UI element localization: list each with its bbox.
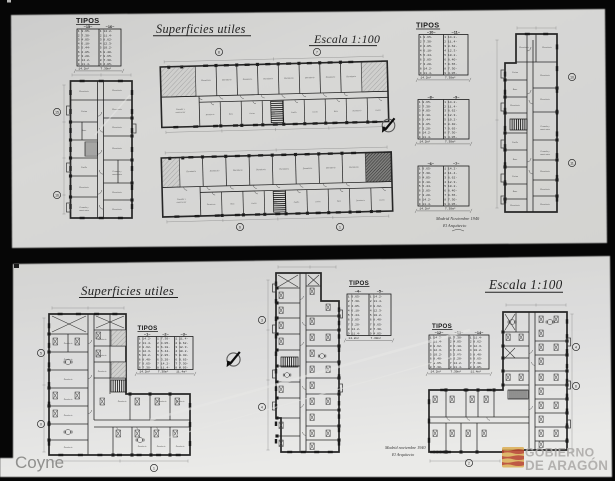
svg-text:3 4.05·: 3 4.05· — [420, 44, 433, 48]
svg-text:Coyne: Coyne — [15, 453, 64, 472]
svg-text:Dormitorio: Dormitorio — [111, 126, 121, 129]
svg-text:4 6.18·: 4 6.18· — [420, 49, 433, 53]
svg-text:cuarto estar: cuarto estar — [177, 201, 187, 204]
svg-text:5 10.2·: 5 10.2· — [444, 184, 457, 188]
svg-text:Dormitorio: Dormitorio — [175, 400, 185, 403]
svg-text:Cocina: Cocina — [251, 203, 257, 205]
svg-text:Dormitorio: Dormitorio — [255, 168, 266, 171]
svg-text:3 8.62·: 3 8.62· — [444, 44, 457, 48]
svg-text:Dormitorio: Dormitorio — [325, 166, 336, 169]
svg-text:Dormitorio: Dormitorio — [302, 167, 313, 170]
svg-text:Bano: Bano — [513, 89, 517, 91]
svg-text:Dormitorio: Dormitorio — [137, 445, 147, 448]
svg-text:2 11.4·: 2 11.4· — [444, 171, 457, 175]
svg-text:Dormitorio: Dormitorio — [206, 203, 216, 206]
svg-text:5 5.44·: 5 5.44· — [348, 313, 361, 317]
svg-text:TIPOS: TIPOS — [349, 280, 369, 287]
svg-text:Dormitorio: Dormitorio — [325, 76, 336, 79]
svg-text:Dormitorio: Dormitorio — [63, 414, 73, 417]
svg-text:4 12.3·: 4 12.3· — [370, 308, 383, 312]
svg-text:Cocina: Cocina — [81, 111, 87, 113]
svg-text:14.2m²: 14.2m² — [419, 141, 430, 144]
svg-text:4: 4 — [575, 345, 577, 349]
svg-text:Cocina: Cocina — [512, 72, 518, 74]
svg-text:Dormitorio: Dormitorio — [242, 78, 253, 81]
svg-text:8 4.05·: 8 4.05· — [175, 366, 188, 370]
svg-text:Dormitorio: Dormitorio — [117, 400, 127, 403]
svg-text:14.2m²: 14.2m² — [348, 337, 359, 340]
svg-text:Bano: Bano — [273, 202, 277, 204]
svg-text:8 14.2·: 8 14.2· — [348, 327, 361, 331]
svg-text:cuarto estar: cuarto estar — [540, 153, 550, 156]
svg-text:3 4.05·: 3 4.05· — [348, 304, 361, 308]
svg-text:cuarto estar: cuarto estar — [112, 173, 122, 176]
svg-text:1: 1 — [153, 466, 155, 470]
svg-text:Dormitorio: Dormitorio — [232, 169, 243, 172]
svg-text:DE ARAGÓN: DE ARAGÓN — [525, 458, 608, 473]
svg-text:Dormitorio: Dormitorio — [156, 445, 166, 448]
svg-text:Dormitorio: Dormitorio — [97, 370, 107, 373]
svg-text:Dormitorio: Dormitorio — [157, 400, 167, 403]
svg-text:14.2m²: 14.2m² — [78, 68, 89, 71]
svg-text:TIPOS: TIPOS — [432, 323, 452, 330]
svg-text:Madrid Noviembre 1940: Madrid Noviembre 1940 — [435, 216, 480, 221]
svg-text:7.30m²: 7.30m² — [100, 68, 111, 71]
svg-text:8: 8 — [218, 50, 220, 54]
svg-text:9 11.4·: 9 11.4· — [419, 135, 432, 139]
svg-text:TIPOS: TIPOS — [416, 21, 439, 30]
svg-text:Bano: Bano — [229, 113, 233, 115]
svg-text:7: 7 — [316, 50, 318, 54]
svg-text:9 4.05·: 9 4.05· — [370, 331, 383, 335]
svg-text:Comedor y: Comedor y — [177, 199, 186, 201]
svg-text:Bano: Bano — [230, 203, 234, 205]
svg-text:2 11.4·: 2 11.4· — [370, 299, 383, 303]
svg-text:8 4.05·: 8 4.05· — [470, 365, 483, 369]
svg-text:Dormitorio: Dormitorio — [78, 186, 88, 189]
svg-text:Madrid noviembre 1940: Madrid noviembre 1940 — [384, 445, 426, 450]
svg-text:Pasillo: Pasillo — [290, 112, 296, 114]
svg-text:Dormitorio: Dormitorio — [539, 170, 549, 173]
svg-text:Dormitorio: Dormitorio — [262, 77, 273, 80]
svg-text:4 12.3·: 4 12.3· — [444, 180, 457, 184]
svg-text:Cocina: Cocina — [249, 113, 255, 115]
svg-text:El Arquitecto: El Arquitecto — [442, 223, 467, 228]
svg-text:Dormitorio: Dormitorio — [185, 170, 196, 173]
svg-text:Cocina: Cocina — [512, 176, 518, 178]
svg-text:8 14.2·: 8 14.2· — [420, 67, 433, 71]
svg-text:Dormitorio: Dormitorio — [78, 90, 88, 93]
svg-text:Dormitorio: Dormitorio — [509, 104, 519, 107]
svg-text:~4~: ~4~ — [355, 290, 362, 294]
svg-text:7.30m²: 7.30m² — [445, 141, 456, 144]
svg-text:0: 0 — [40, 422, 42, 426]
svg-text:cuarto estar: cuarto estar — [540, 128, 550, 131]
svg-text:1 9.65·: 1 9.65· — [348, 295, 361, 299]
svg-text:Dormitorio: Dormitorio — [518, 46, 528, 49]
svg-text:Dormitorio: Dormitorio — [304, 76, 315, 79]
svg-text:Bano: Bano — [337, 201, 341, 203]
svg-text:Dormitorio: Dormitorio — [63, 446, 73, 449]
svg-text:7 3.20·: 7 3.20· — [419, 193, 432, 197]
svg-text:10: 10 — [570, 75, 574, 79]
svg-text:9 4.05·: 9 4.05· — [444, 202, 457, 206]
svg-text:8 7.30·: 8 7.30· — [370, 327, 383, 331]
svg-text:3 4.05·: 3 4.05· — [419, 175, 432, 179]
svg-text:7.30m²: 7.30m² — [445, 208, 456, 211]
svg-text:Comedor y: Comedor y — [79, 207, 88, 209]
svg-text:Bano: Bano — [513, 159, 517, 161]
svg-text:1 9.65·: 1 9.65· — [419, 166, 432, 170]
svg-text:9 4.05·: 9 4.05· — [444, 71, 457, 75]
svg-text:6 2.85·: 6 2.85· — [348, 318, 361, 322]
svg-text:TIPOS: TIPOS — [76, 16, 99, 25]
svg-text:4: 4 — [261, 405, 263, 409]
svg-text:Dormitorio: Dormitorio — [209, 169, 220, 172]
svg-text:Pasillo: Pasillo — [80, 167, 87, 169]
svg-text:7 9.65·: 7 9.65· — [444, 193, 457, 197]
svg-text:6 8.40·: 6 8.40· — [444, 189, 457, 193]
svg-text:7 9.65·: 7 9.65· — [444, 62, 457, 66]
svg-text:6 8.40·: 6 8.40· — [370, 318, 383, 322]
svg-text:Dormitorio: Dormitorio — [539, 203, 549, 206]
svg-text:6: 6 — [575, 384, 577, 388]
svg-text:11: 11 — [570, 161, 574, 165]
svg-text:2 7.30·: 2 7.30· — [420, 40, 433, 44]
svg-text:5 5.44·: 5 5.44· — [420, 53, 433, 57]
svg-text:Dormitorio: Dormitorio — [539, 74, 549, 77]
svg-text:7 3.20·: 7 3.20· — [348, 322, 361, 326]
svg-text:Cocina: Cocina — [315, 201, 321, 203]
svg-text:Dormitorio: Dormitorio — [205, 113, 215, 116]
svg-text:Dormitorio: Dormitorio — [352, 109, 362, 112]
svg-text:Dormitorio: Dormitorio — [539, 98, 549, 101]
svg-text:8 11.4·: 8 11.4· — [450, 365, 463, 369]
svg-text:cuarto estar: cuarto estar — [79, 209, 89, 212]
svg-text:Dormitorio: Dormitorio — [221, 78, 232, 81]
svg-text:cuarto estar: cuarto estar — [176, 111, 186, 114]
svg-text:3 8.62·: 3 8.62· — [370, 304, 383, 308]
svg-text:Comedor y: Comedor y — [540, 126, 549, 128]
svg-text:4 6.18·: 4 6.18· — [348, 308, 361, 312]
svg-text:Dormitorio: Dormitorio — [63, 358, 73, 361]
svg-text:14.2m²: 14.2m² — [139, 371, 150, 374]
svg-text:~9~: ~9~ — [453, 96, 460, 100]
svg-text:Comedor y: Comedor y — [540, 151, 549, 153]
svg-text:Dormitorio: Dormitorio — [509, 204, 519, 207]
svg-text:1 14.2·: 1 14.2· — [444, 35, 457, 39]
svg-text:Pasillo: Pasillo — [511, 142, 518, 144]
svg-text:9 11.4·: 9 11.4· — [420, 71, 433, 75]
svg-text:2: 2 — [468, 461, 470, 465]
svg-text:Pasillo: Pasillo — [293, 202, 299, 204]
svg-text:6 2.85·: 6 2.85· — [420, 58, 433, 62]
svg-text:7.30m²: 7.30m² — [450, 371, 461, 374]
svg-text:Bano: Bano — [334, 111, 338, 113]
svg-text:Dormitorio: Dormitorio — [111, 147, 121, 150]
svg-text:Cocina: Cocina — [375, 110, 381, 112]
svg-text:4 12.3·: 4 12.3· — [444, 49, 457, 53]
svg-text:11.4m²: 11.4m² — [470, 371, 481, 374]
svg-text:8 14.2·: 8 14.2· — [419, 198, 432, 202]
svg-text:14.2m²: 14.2m² — [430, 371, 441, 374]
svg-text:~11~: ~11~ — [452, 31, 461, 35]
svg-text:2 7.30·: 2 7.30· — [348, 299, 361, 303]
svg-text:Dormitorio: Dormitorio — [200, 79, 211, 82]
svg-text:8 7.30·: 8 7.30· — [444, 67, 457, 71]
svg-text:Dormitorio: Dormitorio — [63, 342, 73, 345]
svg-text:7 9.65·: 7 9.65· — [370, 322, 383, 326]
svg-text:7.30m²: 7.30m² — [445, 77, 456, 80]
svg-text:5 10.2·: 5 10.2· — [370, 313, 383, 317]
svg-text:9 11.4·: 9 11.4· — [348, 331, 361, 335]
svg-text:8 7.30·: 8 7.30· — [444, 198, 457, 202]
svg-text:6 8.40·: 6 8.40· — [444, 58, 457, 62]
svg-text:Dormitorio: Dormitorio — [97, 354, 107, 357]
svg-text:7.30m²: 7.30m² — [370, 337, 381, 340]
svg-text:2 7.30·: 2 7.30· — [419, 171, 432, 175]
svg-text:9 11.4·: 9 11.4· — [419, 202, 432, 206]
svg-text:Cocina: Cocina — [312, 111, 318, 113]
svg-text:14.2m²: 14.2m² — [419, 208, 430, 211]
svg-text:9 11.4·: 9 11.4· — [78, 62, 91, 66]
svg-text:Dormitorio: Dormitorio — [111, 89, 121, 92]
svg-text:Superficies utiles: Superficies utiles — [81, 284, 174, 298]
svg-text:Superficies utiles: Superficies utiles — [156, 22, 246, 36]
svg-text:El Arquitecto: El Arquitecto — [391, 452, 414, 457]
svg-text:11.4m²: 11.4m² — [176, 371, 187, 374]
svg-text:Dormitorio: Dormitorio — [175, 445, 185, 448]
svg-text:6: 6 — [239, 225, 241, 229]
svg-text:Comedor y: Comedor y — [176, 109, 185, 111]
svg-text:5: 5 — [40, 351, 42, 355]
svg-text:~5~: ~5~ — [377, 290, 384, 294]
svg-text:TIPOS: TIPOS — [138, 325, 158, 332]
svg-text:Cocina: Cocina — [379, 199, 385, 201]
svg-text:Dormitorio: Dormitorio — [111, 208, 121, 211]
svg-text:~7~: ~7~ — [453, 162, 460, 166]
svg-text:8 11.4·: 8 11.4· — [157, 366, 170, 370]
svg-text:1: 1 — [339, 225, 341, 229]
svg-text:7 3.20·: 7 3.20· — [420, 62, 433, 66]
svg-text:16: 16 — [55, 193, 59, 197]
svg-text:7.30m²: 7.30m² — [158, 371, 169, 374]
svg-text:9 4.05·: 9 4.05· — [444, 135, 457, 139]
svg-text:Dormitorio: Dormitorio — [283, 77, 294, 80]
svg-text:Bano: Bano — [513, 191, 517, 193]
svg-text:15: 15 — [55, 110, 59, 114]
svg-text:5 10.2·: 5 10.2· — [444, 53, 457, 57]
svg-text:1 9.65·: 1 9.65· — [420, 35, 433, 39]
svg-text:~10~: ~10~ — [427, 31, 436, 35]
svg-text:2 11.4·: 2 11.4· — [444, 40, 457, 44]
svg-text:Dormitorio: Dormitorio — [97, 338, 107, 341]
svg-text:Dormitorio: Dormitorio — [63, 398, 73, 401]
svg-text:6 2.85·: 6 2.85· — [419, 189, 432, 193]
svg-text:Dormitorio: Dormitorio — [355, 199, 365, 202]
svg-text:Dormitorio: Dormitorio — [345, 75, 356, 78]
svg-text:Bano: Bano — [271, 112, 275, 114]
svg-text:Dormitorio: Dormitorio — [63, 378, 73, 381]
svg-text:5 5.44·: 5 5.44· — [419, 184, 432, 188]
svg-text:Dormitorio: Dormitorio — [111, 191, 121, 194]
svg-text:14.2m²: 14.2m² — [420, 77, 431, 80]
svg-text:Dormitorio: Dormitorio — [348, 166, 359, 169]
svg-text:8 7.30·: 8 7.30· — [139, 366, 152, 370]
svg-text:1 14.2·: 1 14.2· — [444, 166, 457, 170]
svg-text:Dormitorio: Dormitorio — [278, 167, 289, 170]
svg-text:Comedor y: Comedor y — [112, 171, 121, 173]
svg-text:3: 3 — [261, 318, 263, 322]
svg-text:Dormitorio: Dormitorio — [539, 188, 549, 191]
svg-text:1 14.2·: 1 14.2· — [370, 295, 383, 299]
svg-text:Escala 1:100: Escala 1:100 — [313, 32, 380, 46]
svg-text:8 7.30·: 8 7.30· — [430, 365, 443, 369]
svg-text:4 6.18·: 4 6.18· — [419, 180, 432, 184]
svg-text:Bano: Bano — [82, 130, 86, 132]
svg-text:~6~: ~6~ — [427, 162, 434, 166]
svg-text:~8~: ~8~ — [427, 96, 434, 100]
svg-text:Escala 1:100: Escala 1:100 — [488, 277, 563, 292]
svg-text:3 8.62·: 3 8.62· — [444, 175, 457, 179]
svg-text:Dormitorio: Dormitorio — [541, 46, 551, 49]
svg-text:9 4.05·: 9 4.05· — [100, 62, 113, 66]
